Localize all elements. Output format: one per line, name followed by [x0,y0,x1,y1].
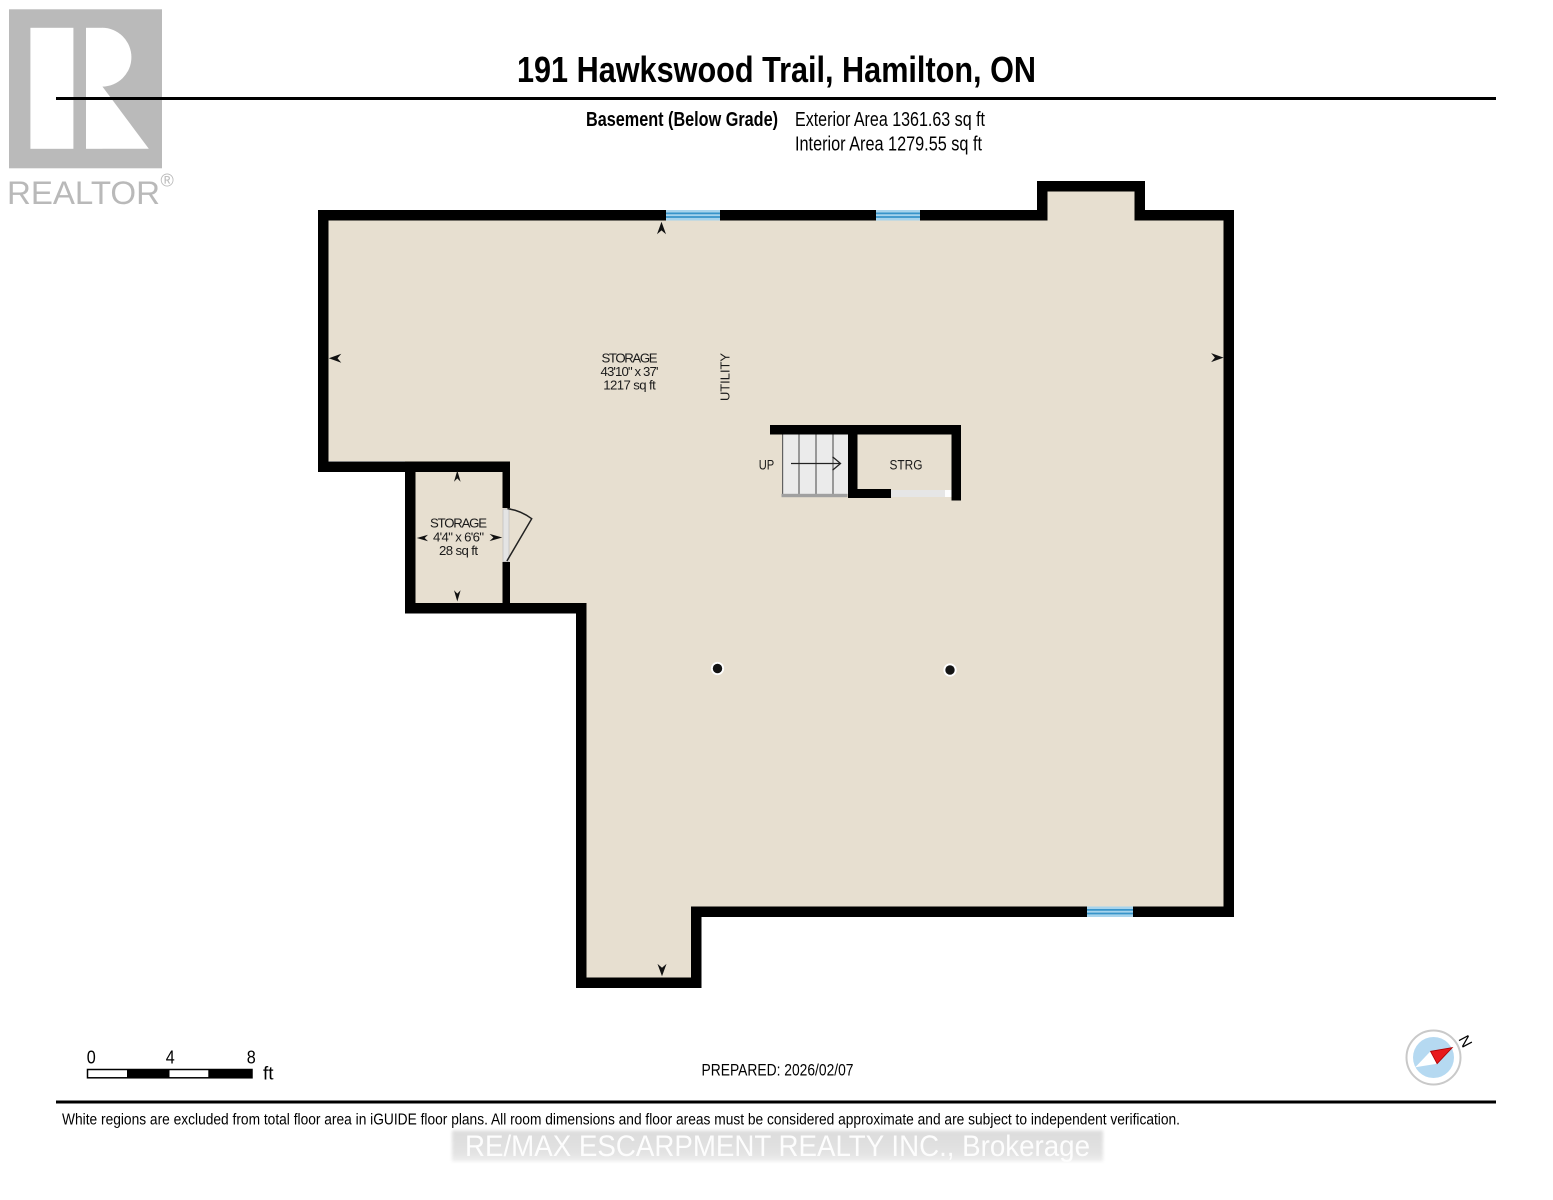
svg-text:STRG: STRG [890,458,923,473]
svg-text:4: 4 [166,1047,175,1068]
svg-text:UTILITY: UTILITY [718,353,733,401]
svg-text:Exterior Area 1361.63 sq ft: Exterior Area 1361.63 sq ft [795,109,985,131]
svg-text:8: 8 [247,1047,256,1068]
svg-text:UP: UP [759,458,775,473]
svg-text:0: 0 [87,1047,96,1068]
svg-text:RE/MAX ESCARPMENT REALTY INC.,: RE/MAX ESCARPMENT REALTY INC., Brokerage [465,1130,1090,1163]
svg-text:1217 sq ft: 1217 sq ft [603,378,656,393]
svg-text:Basement (Below Grade): Basement (Below Grade) [586,109,778,131]
svg-text:28 sq ft: 28 sq ft [439,543,478,558]
svg-text:191 Hawkswood Trail, Hamilton,: 191 Hawkswood Trail, Hamilton, ON [517,49,1036,90]
svg-text:PREPARED: 2026/02/07: PREPARED: 2026/02/07 [702,1061,854,1080]
svg-text:Interior Area 1279.55 sq ft: Interior Area 1279.55 sq ft [795,134,982,156]
svg-text:STORAGE: STORAGE [430,516,487,531]
svg-text:White regions are excluded fro: White regions are excluded from total fl… [62,1112,1180,1129]
svg-text:ft: ft [263,1063,274,1084]
